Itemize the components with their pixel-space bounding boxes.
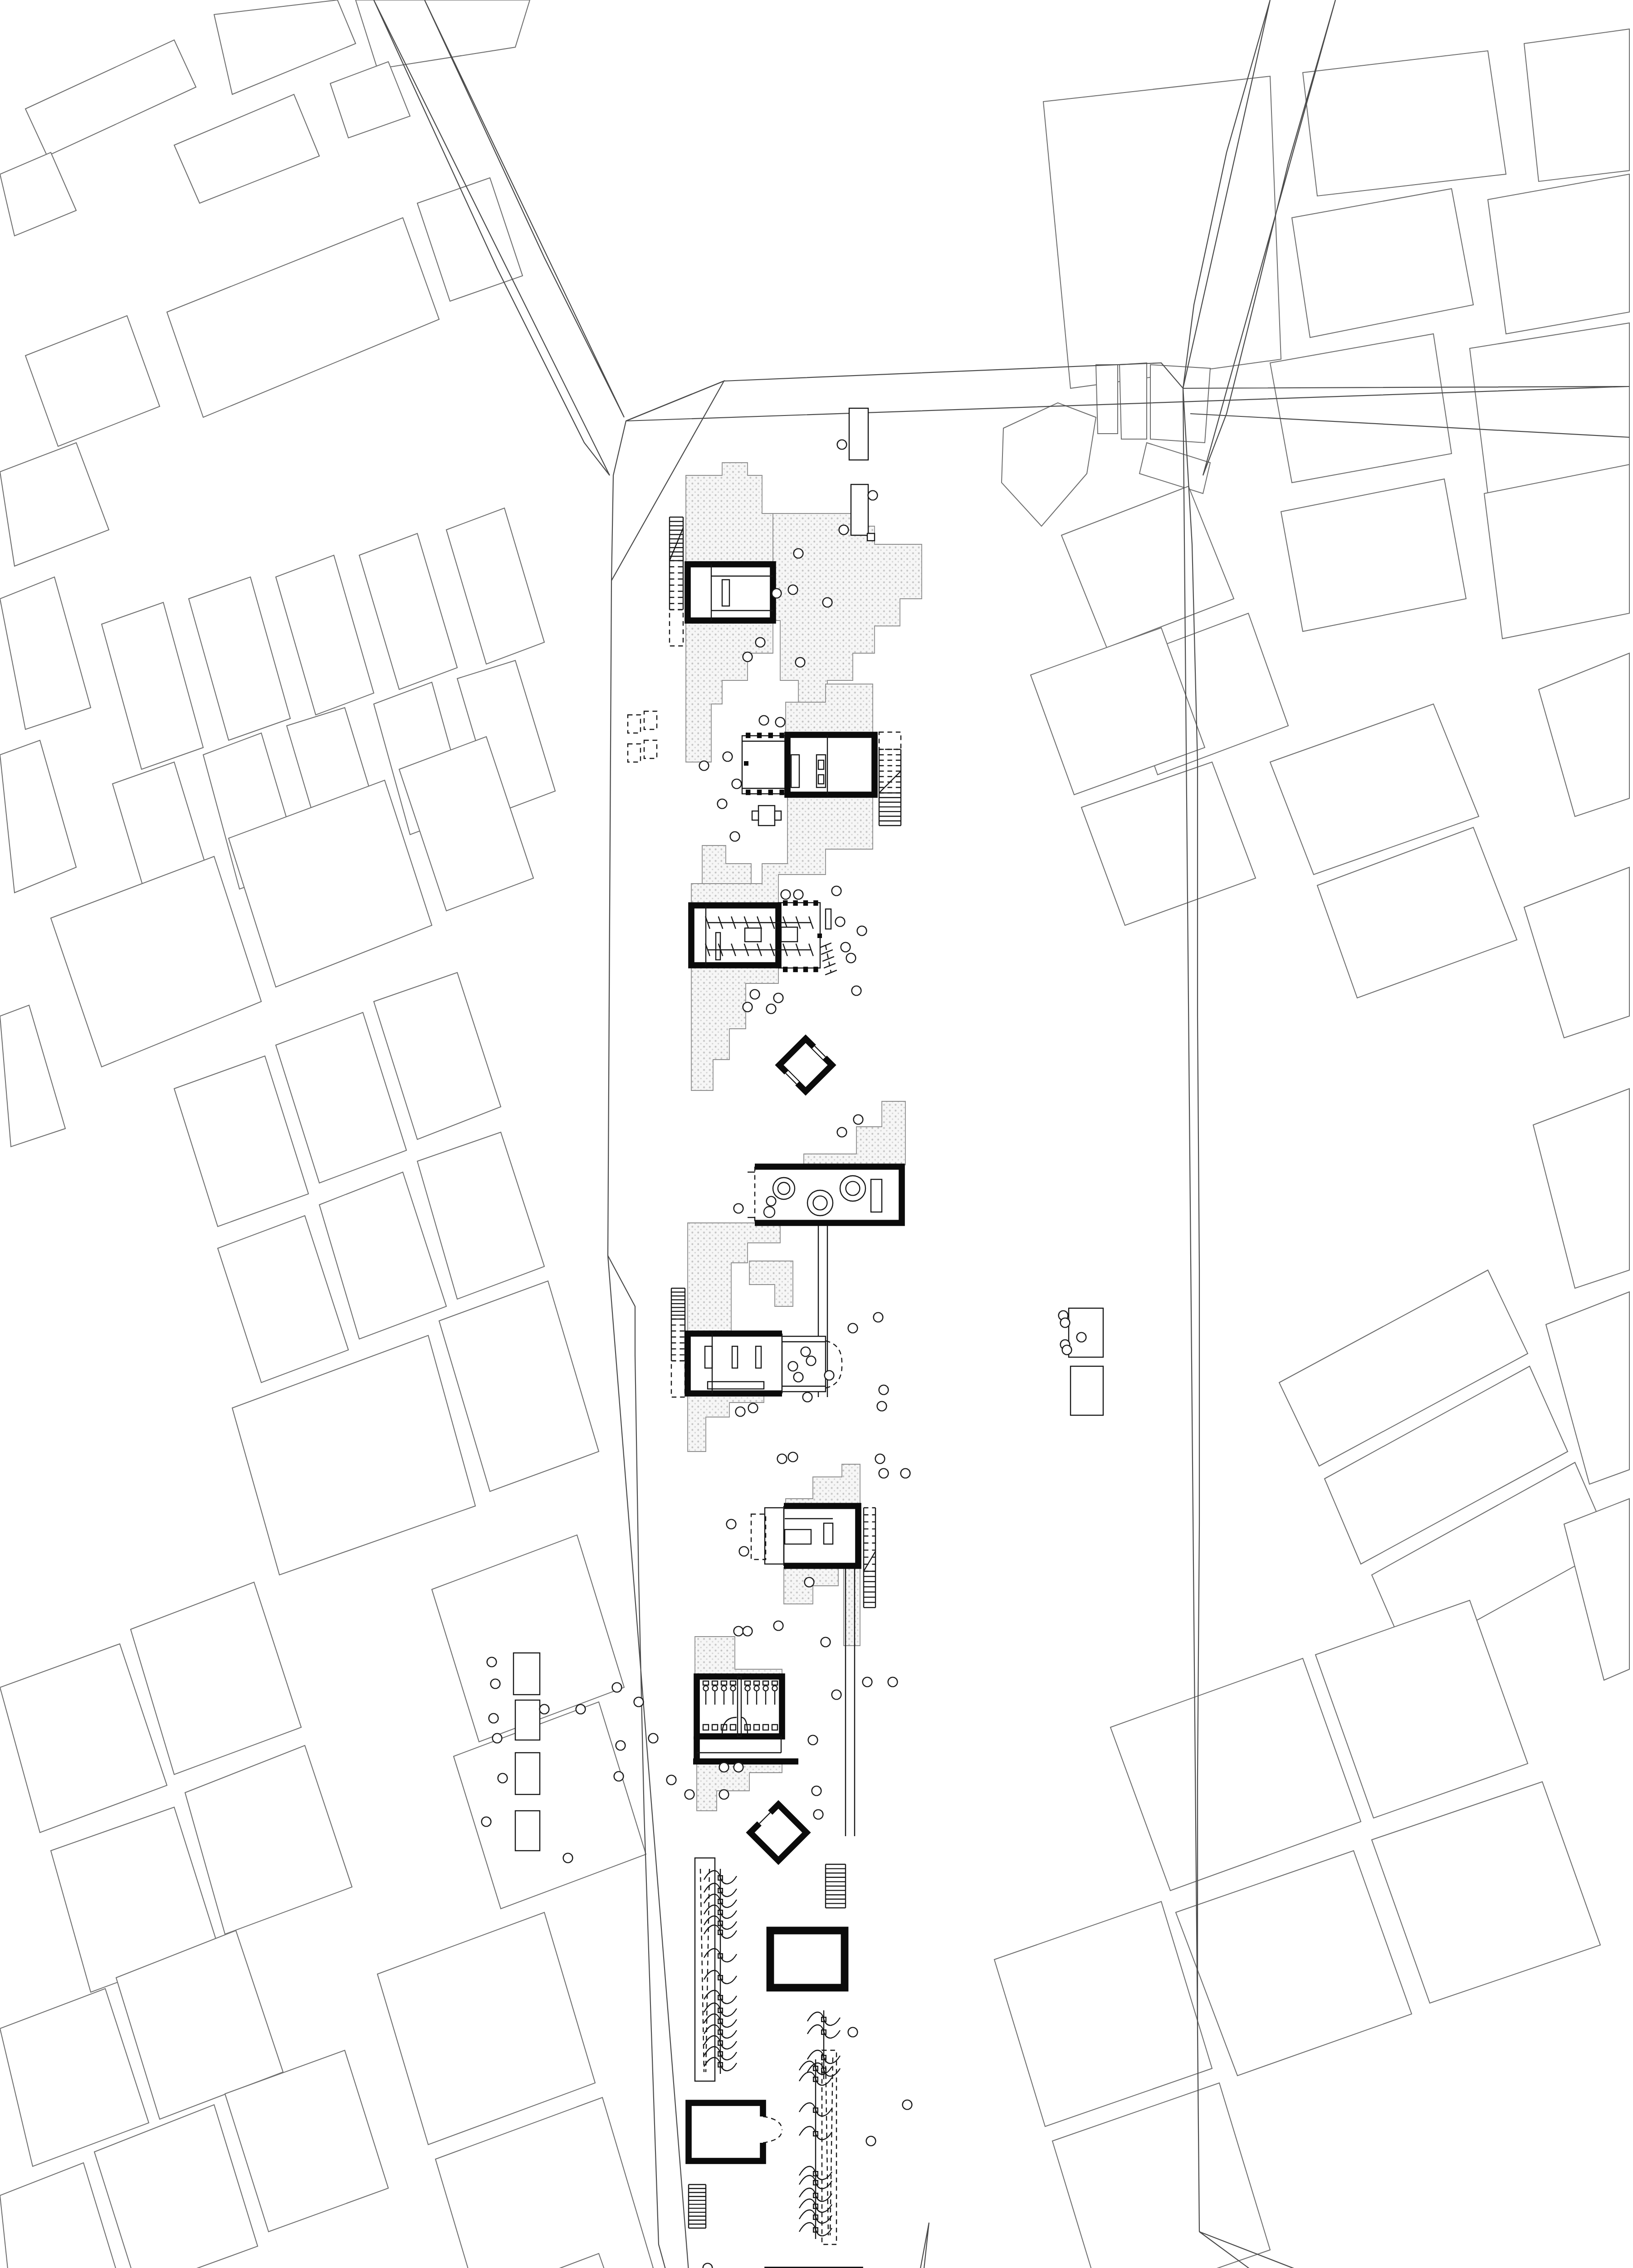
city-block — [446, 508, 544, 664]
scatter-circle — [836, 917, 845, 927]
pavilion-building — [781, 927, 797, 942]
scatter-circle — [563, 1853, 573, 1863]
city-block — [1372, 1782, 1600, 2003]
pavilion-building — [691, 905, 778, 965]
city-block — [0, 577, 91, 729]
site-furniture — [644, 740, 657, 758]
scatter-circle — [788, 585, 798, 595]
scatter-circle — [877, 1402, 887, 1411]
pavilion-building — [730, 1686, 735, 1691]
scatter-circle — [649, 1734, 658, 1743]
city-block — [131, 1582, 301, 1774]
city-block — [1176, 1851, 1412, 2076]
pavilion-building — [793, 967, 797, 972]
planting-bed — [700, 1869, 704, 2072]
city-block — [1043, 76, 1281, 388]
scatter-circle — [776, 718, 785, 727]
planting-bed — [822, 2050, 836, 2244]
pavilion-building — [768, 733, 773, 738]
pavilion-building — [787, 735, 875, 795]
city-block — [167, 218, 439, 417]
kiosk — [513, 1653, 540, 1695]
city-block — [1139, 443, 1210, 494]
city-block — [1533, 1089, 1629, 1288]
pavilion-building — [688, 1334, 782, 1393]
city-block — [276, 555, 374, 715]
scatter-circle — [801, 1347, 811, 1357]
city-block — [0, 1005, 65, 1147]
scatter-circle — [739, 1547, 749, 1556]
kiosk — [515, 1753, 540, 1794]
city-block — [356, 0, 530, 69]
scatter-circle — [772, 589, 782, 598]
scatter-circle — [803, 1393, 812, 1402]
scatter-circle — [839, 525, 849, 535]
pavilion-building — [765, 1508, 784, 1564]
site-furniture — [644, 711, 657, 729]
scatter-circle — [1077, 1333, 1086, 1342]
scatter-circle — [901, 1469, 910, 1478]
scatter-circle — [699, 761, 709, 771]
site-plan-canvas — [0, 0, 1633, 2268]
scatter-circle — [888, 1677, 898, 1687]
scatter-circle — [874, 1313, 883, 1322]
city-block — [25, 40, 196, 156]
scatter-circle — [774, 1621, 783, 1631]
city-block — [214, 0, 356, 94]
scatter-circle — [616, 1741, 626, 1750]
city-block — [189, 577, 290, 740]
scatter-circle — [774, 993, 783, 1003]
scatter-circle — [685, 1790, 694, 1799]
city-block — [1292, 189, 1473, 337]
pavilion-building — [784, 1506, 858, 1566]
scatter-circle — [482, 1817, 491, 1827]
scatter-circle — [491, 1679, 500, 1689]
pavilion-building — [813, 900, 818, 906]
street-line — [871, 2223, 929, 2268]
stippled-plaza — [695, 1637, 782, 1677]
stippled-plaza — [702, 846, 751, 884]
scatter-circle — [863, 1677, 872, 1687]
pavilion-building — [703, 1686, 708, 1691]
scatter-circle — [796, 658, 805, 667]
scatter-circle — [667, 1775, 676, 1785]
scatter-circle — [748, 1403, 758, 1413]
pavilion-building — [755, 1167, 902, 1223]
city-block — [1539, 653, 1629, 816]
scatter-circle — [825, 1371, 834, 1380]
scatter-circle — [743, 1002, 753, 1012]
scatter-circle — [736, 1407, 745, 1417]
site-furniture — [775, 811, 781, 820]
scatter-circle — [848, 1324, 858, 1333]
city-block — [102, 602, 203, 769]
city-block — [1488, 174, 1629, 334]
scatter-circle — [814, 1810, 823, 1819]
city-block — [1281, 479, 1466, 631]
kiosk — [851, 484, 868, 535]
scatter-circle — [823, 598, 832, 607]
scatter-circle — [807, 1356, 816, 1366]
scatter-circle — [723, 752, 733, 762]
scatter-circle — [703, 2263, 713, 2268]
city-block — [51, 856, 261, 1067]
scatter-circle — [837, 440, 847, 450]
city-block — [994, 1901, 1212, 2126]
scatter-circle — [875, 1454, 885, 1464]
scatter-circle — [832, 1690, 841, 1700]
pavilion-building — [783, 900, 787, 906]
city-block — [1150, 365, 1210, 443]
pavilion-building — [746, 733, 750, 738]
scatter-circle — [734, 1627, 743, 1636]
stair — [864, 1551, 875, 1571]
site-furniture — [628, 744, 640, 762]
city-block — [359, 533, 457, 689]
scatter-circle — [732, 779, 742, 789]
city-block — [0, 152, 76, 236]
pavilion-building — [803, 900, 808, 906]
city-block — [330, 62, 410, 138]
kiosk — [1071, 1366, 1103, 1415]
city-block — [1110, 1658, 1361, 1891]
pavilion-building — [779, 790, 784, 795]
city-block — [1564, 1499, 1629, 1680]
city-block — [1303, 51, 1506, 196]
scatter-circle — [837, 1128, 847, 1137]
scatter-circle — [719, 1763, 729, 1772]
pavilion-building — [688, 564, 773, 621]
pavilion-building — [817, 934, 822, 938]
scatter-circle — [727, 1520, 736, 1529]
trees-layer — [704, 1869, 840, 2239]
pavilion-building — [745, 1686, 750, 1691]
pavilion-building — [721, 1686, 726, 1691]
site-furniture — [628, 715, 640, 733]
scatter-circle — [719, 1790, 729, 1799]
site-furniture — [752, 811, 758, 820]
scatter-circle — [756, 638, 765, 647]
scatter-circle — [854, 1115, 863, 1124]
scatter-circle — [848, 2028, 858, 2037]
stippled-plaza — [691, 965, 778, 1090]
scatter-circle — [498, 1774, 508, 1783]
pavilion-building — [751, 1514, 766, 1559]
kiosk — [515, 1700, 540, 1740]
street-line — [608, 581, 611, 1256]
scatter-circle — [868, 491, 878, 500]
kiosk — [1069, 1308, 1103, 1357]
pavilion-building — [689, 2103, 763, 2161]
scatter-circle — [808, 1735, 818, 1745]
stair — [670, 528, 683, 561]
scatter-circle — [1061, 1318, 1070, 1328]
scatter-circle — [718, 799, 727, 809]
scatter-circle — [788, 1362, 798, 1371]
scatter-circle — [841, 943, 851, 952]
pavilion-building — [813, 967, 818, 972]
scatter-circle — [576, 1705, 586, 1714]
pavilion-building — [779, 733, 784, 738]
site-furniture — [826, 909, 831, 929]
city-block — [0, 1644, 167, 1833]
city-block — [174, 94, 319, 203]
scatter-circle — [489, 1714, 499, 1723]
pavilion-building — [742, 736, 787, 794]
city-block — [377, 1912, 595, 2145]
city-block — [1002, 403, 1096, 526]
kiosk — [849, 408, 868, 460]
scatter-circle — [1062, 1345, 1072, 1355]
pavilion-building — [697, 1677, 782, 1736]
scatter-circle — [759, 716, 769, 725]
scatter-circle — [903, 2100, 912, 2110]
stair — [879, 732, 901, 749]
scatter-circle — [805, 1578, 814, 1587]
scatter-circle — [788, 1452, 798, 1462]
scatter-circle — [794, 1373, 803, 1382]
city-block — [0, 740, 76, 893]
city-block — [0, 443, 109, 566]
stair — [670, 610, 683, 646]
planting-bed — [830, 2058, 833, 2235]
pavilion-building — [757, 790, 762, 795]
pavilion-building — [770, 1931, 845, 1988]
pavilion-building — [803, 967, 808, 972]
scatter-circle — [832, 886, 841, 896]
scatter-circle — [781, 890, 791, 899]
scatter-circle — [634, 1697, 644, 1707]
stippled-plaza — [804, 1101, 905, 1165]
scatter-circle — [879, 1385, 889, 1395]
city-block — [1484, 464, 1629, 639]
pavilion-building — [757, 733, 762, 738]
kiosk — [515, 1811, 540, 1851]
pavilion-building — [826, 1341, 842, 1363]
stippled-plaza — [749, 1261, 793, 1306]
scatter-circle — [794, 549, 803, 558]
city-block — [1081, 762, 1256, 925]
scatter-circle — [734, 1204, 743, 1213]
city-block — [417, 1132, 544, 1299]
city-block — [1061, 486, 1234, 648]
pavilion-building — [768, 790, 773, 795]
scatter-circle — [879, 1469, 889, 1478]
pavilion-building — [763, 1686, 768, 1691]
scatter-circle — [487, 1657, 497, 1667]
scatter-circle — [767, 1197, 776, 1206]
city-block — [185, 1745, 352, 1934]
scatter-circle — [852, 986, 861, 996]
diamond-pavilion — [750, 1804, 807, 1861]
city-block — [1470, 323, 1629, 494]
scatter-circle — [846, 953, 856, 963]
city-block — [1096, 365, 1118, 434]
scatter-circle — [612, 1683, 622, 1692]
stair — [671, 1361, 685, 1397]
pavilion-building — [772, 1686, 777, 1691]
scatter-circle — [857, 926, 867, 936]
scatter-circle — [743, 1627, 753, 1636]
site-furniture — [758, 806, 775, 826]
city-block — [1524, 867, 1629, 1038]
pavilion-building — [764, 1207, 775, 1217]
scatter-circle — [734, 1763, 743, 1772]
scatter-circle — [614, 1772, 624, 1781]
pavilion-building — [793, 900, 797, 906]
city-block — [25, 316, 160, 446]
stippled-plaza — [686, 463, 773, 564]
scatter-circle — [767, 1004, 776, 1014]
city-block — [218, 1216, 348, 1383]
scatter-circle — [794, 890, 803, 899]
city-block — [1524, 29, 1629, 181]
stippled-plaza — [786, 1464, 860, 1506]
city-block — [1270, 334, 1452, 483]
city-block — [417, 178, 523, 301]
scatter-circle — [812, 1786, 821, 1796]
scatter-circle — [866, 2136, 876, 2146]
pavilion-building — [744, 761, 748, 766]
scatter-circle — [493, 1734, 502, 1743]
scatter-circle — [777, 1454, 787, 1464]
scatter-circle — [821, 1637, 831, 1647]
pavilion-building — [754, 1686, 759, 1691]
scatter-circle — [743, 652, 753, 662]
pavilion-building — [745, 928, 761, 942]
pavilion-building — [783, 967, 787, 972]
pavilion-building — [712, 1686, 717, 1691]
scatter-circle — [750, 990, 760, 999]
pavilion-building — [746, 790, 750, 795]
scatter-circle — [730, 832, 740, 841]
city-block — [1120, 363, 1147, 439]
stippled-plaza — [773, 513, 922, 708]
diamond-pavilion — [779, 1039, 832, 1091]
kiosk — [867, 533, 875, 541]
scatter-circle — [540, 1705, 549, 1714]
